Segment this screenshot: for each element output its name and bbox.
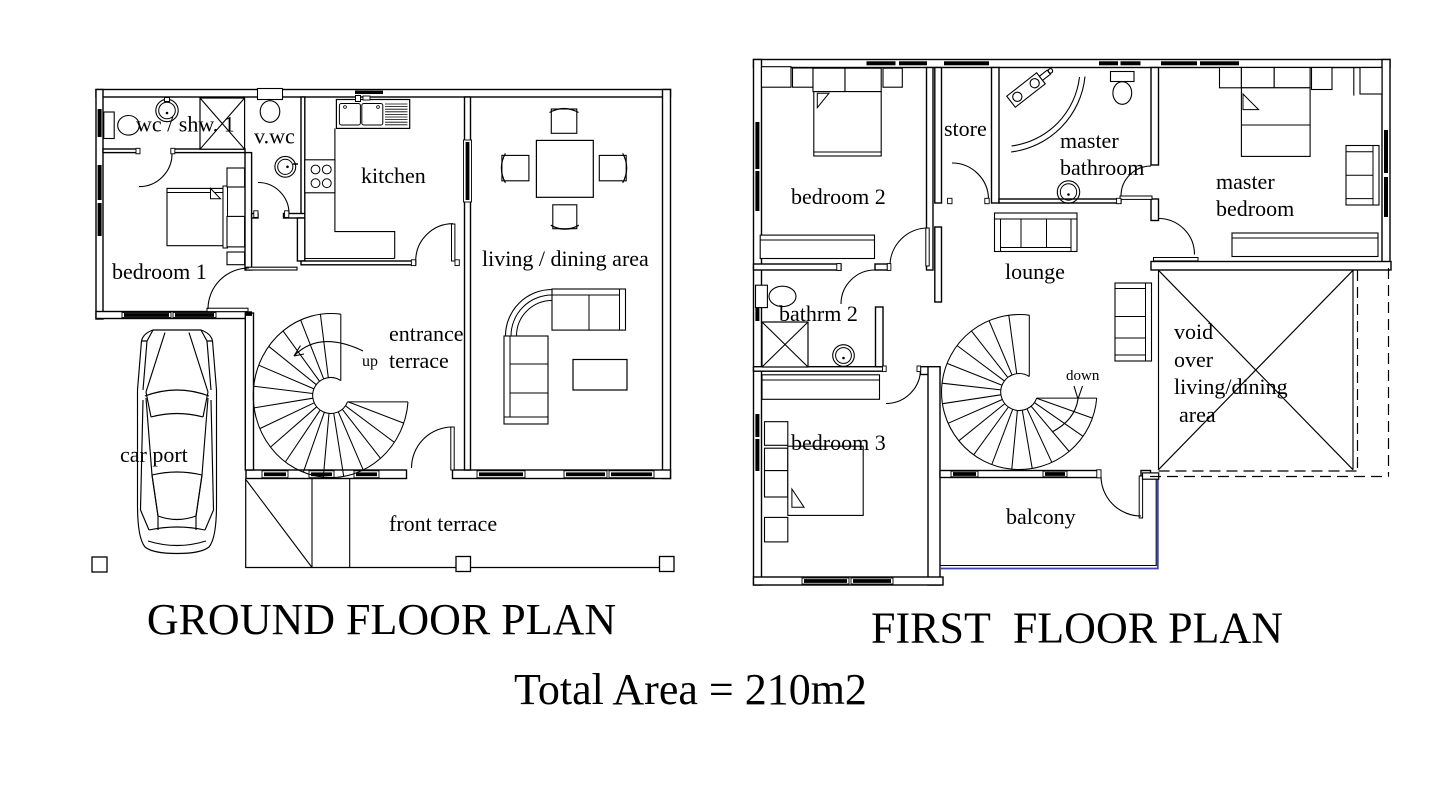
svg-text:bedroom 2: bedroom 2 [791, 184, 886, 209]
svg-text:master: master [1216, 169, 1275, 194]
svg-text:living/dining: living/dining [1174, 374, 1288, 399]
svg-text:GROUND FLOOR PLAN: GROUND FLOOR PLAN [147, 595, 616, 644]
svg-text:living / dining area: living / dining area [482, 246, 649, 271]
svg-text:car port: car port [120, 442, 188, 467]
svg-text:master: master [1060, 128, 1119, 153]
svg-text:down: down [1066, 368, 1100, 384]
svg-text:over: over [1174, 347, 1214, 372]
svg-text:store: store [944, 116, 987, 141]
svg-text:entrance: entrance [389, 321, 464, 346]
svg-text:Total Area = 210m2: Total Area = 210m2 [514, 665, 867, 714]
svg-text:up: up [362, 353, 378, 370]
svg-text:bathroom: bathroom [1060, 155, 1144, 180]
svg-text:bedroom: bedroom [1216, 196, 1294, 221]
svg-text:area: area [1179, 402, 1216, 427]
svg-text:wc / shw. 1: wc / shw. 1 [136, 112, 235, 137]
svg-text:balcony: balcony [1006, 504, 1076, 529]
svg-text:void: void [1174, 319, 1213, 344]
svg-text:FIRST FLOOR PLAN: FIRST FLOOR PLAN [871, 604, 1283, 653]
svg-text:kitchen: kitchen [361, 163, 426, 188]
svg-text:v.wc: v.wc [254, 124, 295, 149]
svg-text:front terrace: front terrace [389, 511, 497, 536]
svg-text:lounge: lounge [1005, 259, 1065, 284]
svg-text:bedroom 1: bedroom 1 [112, 259, 207, 284]
svg-text:bathrm 2: bathrm 2 [779, 301, 858, 326]
svg-text:bedroom 3: bedroom 3 [791, 430, 886, 455]
svg-text:terrace: terrace [389, 348, 449, 373]
